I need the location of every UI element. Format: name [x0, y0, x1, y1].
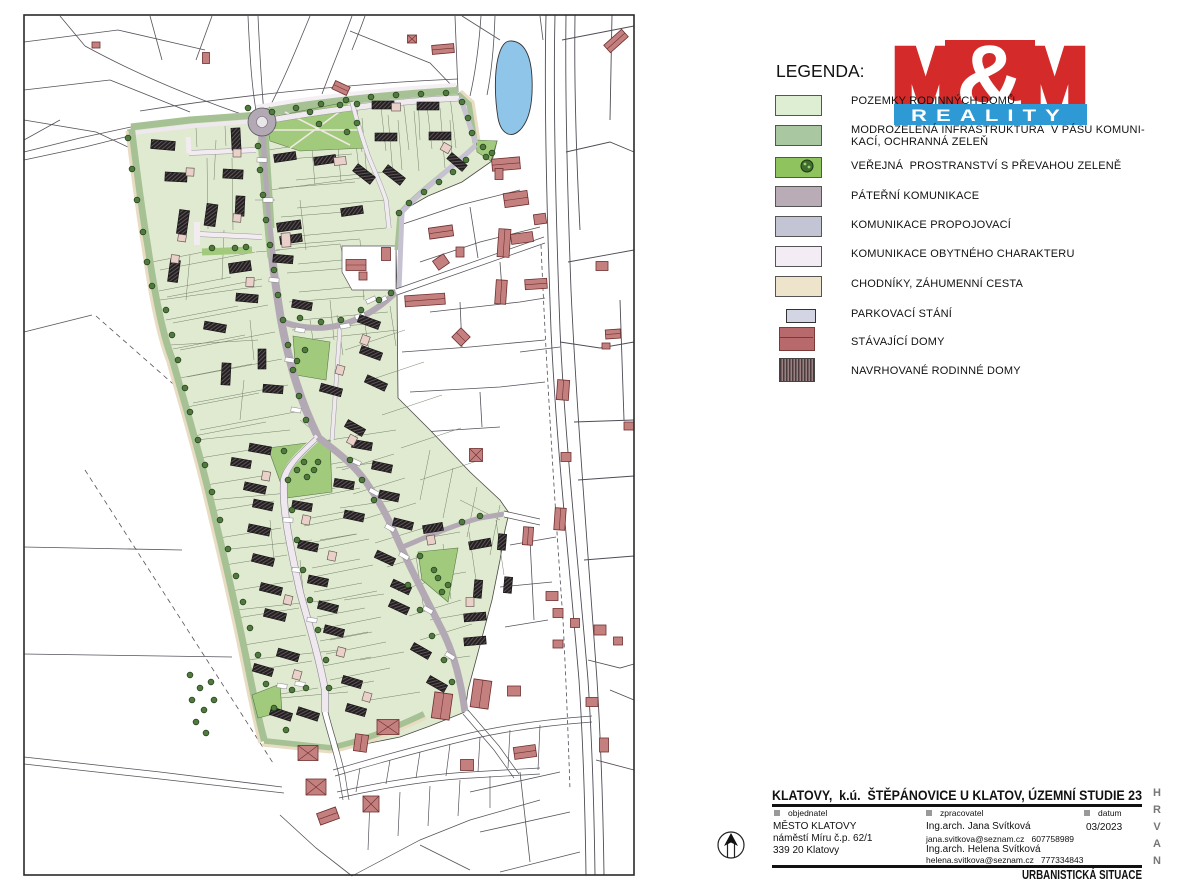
svg-text:URBANISTICKÁ SITUACE: URBANISTICKÁ SITUACE: [1022, 867, 1142, 882]
svg-text:KLATOVY, k.ú. ŠTĚPÁNOVICE U: KLATOVY, k.ú. ŠTĚPÁNOVICE U KLATOV, ÚZEM…: [772, 788, 1142, 803]
svg-text:REALITY: REALITY: [911, 106, 1069, 125]
